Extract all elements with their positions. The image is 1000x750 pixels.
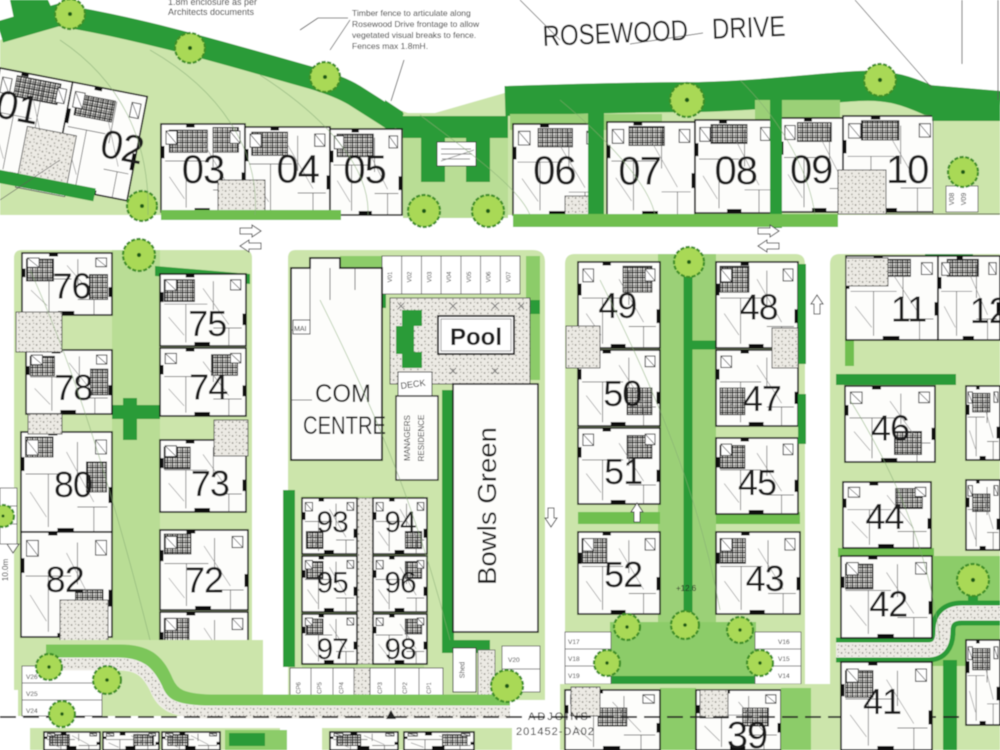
svg-text:02: 02 bbox=[97, 122, 147, 173]
svg-text:V02: V02 bbox=[408, 271, 414, 282]
svg-text:78: 78 bbox=[54, 367, 92, 408]
svg-text:10: 10 bbox=[886, 148, 929, 192]
svg-text:Rosewood Drive frontage to all: Rosewood Drive frontage to allow bbox=[352, 19, 480, 29]
svg-text:12: 12 bbox=[970, 290, 1000, 331]
svg-text:CP1: CP1 bbox=[427, 682, 433, 694]
svg-text:75: 75 bbox=[188, 303, 226, 344]
svg-text:48: 48 bbox=[740, 287, 778, 328]
svg-text:11: 11 bbox=[891, 289, 926, 330]
svg-text:97: 97 bbox=[317, 633, 349, 666]
svg-text:Pool: Pool bbox=[450, 324, 502, 351]
svg-text:44: 44 bbox=[865, 496, 903, 537]
svg-text:76: 76 bbox=[52, 265, 90, 306]
svg-text:MANAGERS: MANAGERS bbox=[403, 415, 412, 461]
svg-text:93: 93 bbox=[317, 506, 349, 539]
svg-text:73: 73 bbox=[191, 463, 229, 504]
svg-text:41: 41 bbox=[863, 681, 901, 722]
svg-text:CP4: CP4 bbox=[340, 682, 346, 694]
svg-text:96: 96 bbox=[384, 566, 416, 599]
svg-text:V07: V07 bbox=[506, 271, 512, 282]
svg-text:V26: V26 bbox=[26, 674, 38, 681]
svg-text:04: 04 bbox=[276, 147, 319, 191]
svg-text:COM: COM bbox=[315, 380, 371, 408]
svg-text:CENTRE: CENTRE bbox=[303, 412, 386, 440]
svg-text:Shed: Shed bbox=[460, 662, 467, 678]
svg-text:52: 52 bbox=[604, 554, 642, 595]
svg-text:51: 51 bbox=[604, 451, 642, 492]
svg-text:V14: V14 bbox=[778, 673, 790, 680]
svg-text:V25: V25 bbox=[26, 691, 38, 698]
svg-text:50: 50 bbox=[603, 373, 641, 414]
svg-text:39: 39 bbox=[727, 715, 767, 750]
svg-text:CP2: CP2 bbox=[403, 682, 409, 694]
svg-text:Timber fence to articulate alo: Timber fence to articulate along bbox=[352, 8, 471, 18]
svg-text:V15: V15 bbox=[778, 656, 790, 663]
svg-text:V08: V08 bbox=[949, 193, 956, 206]
svg-text:95: 95 bbox=[317, 566, 349, 599]
svg-text:V19: V19 bbox=[568, 673, 580, 680]
svg-text:49: 49 bbox=[598, 285, 636, 326]
svg-text:V16: V16 bbox=[778, 639, 790, 646]
svg-text:V09: V09 bbox=[961, 193, 968, 206]
svg-text:V24: V24 bbox=[26, 708, 38, 715]
svg-text:1.8m enclosure as per: 1.8m enclosure as per bbox=[168, 0, 257, 7]
svg-text:CP5: CP5 bbox=[318, 682, 324, 694]
svg-text:V05: V05 bbox=[467, 271, 473, 282]
svg-text:CP6: CP6 bbox=[297, 682, 303, 694]
svg-text:08: 08 bbox=[715, 149, 758, 193]
svg-text:+12.6: +12.6 bbox=[676, 584, 697, 593]
svg-text:74: 74 bbox=[189, 367, 227, 408]
svg-text:V04: V04 bbox=[447, 271, 453, 282]
svg-text:82: 82 bbox=[46, 559, 84, 600]
svg-text:V20: V20 bbox=[508, 657, 520, 664]
svg-text:72: 72 bbox=[185, 559, 223, 600]
svg-text:ADJOINS: ADJOINS bbox=[528, 711, 590, 723]
svg-text:45: 45 bbox=[738, 462, 776, 503]
svg-text:Bowls Green: Bowls Green bbox=[472, 427, 502, 585]
svg-text:MAI: MAI bbox=[294, 326, 307, 333]
svg-text:Architects documents: Architects documents bbox=[168, 7, 255, 17]
svg-text:V06: V06 bbox=[487, 271, 493, 282]
svg-text:80: 80 bbox=[54, 464, 92, 505]
svg-text:47: 47 bbox=[743, 378, 781, 419]
svg-text:V03: V03 bbox=[427, 271, 433, 282]
svg-text:CP3: CP3 bbox=[378, 682, 384, 694]
svg-text:Fences max 1.8mH.: Fences max 1.8mH. bbox=[352, 41, 428, 51]
svg-text:46: 46 bbox=[871, 408, 909, 449]
svg-text:07: 07 bbox=[618, 149, 661, 193]
svg-text:V17: V17 bbox=[568, 639, 580, 646]
svg-text:05: 05 bbox=[343, 148, 386, 192]
svg-text:V01: V01 bbox=[388, 271, 394, 282]
svg-text:201452-DA02: 201452-DA02 bbox=[516, 726, 595, 738]
svg-text:43: 43 bbox=[746, 558, 784, 599]
svg-text:V18: V18 bbox=[568, 656, 580, 663]
svg-text:vegetated visual breaks to fen: vegetated visual breaks to fence. bbox=[352, 30, 476, 40]
svg-text:RESIDENCE: RESIDENCE bbox=[417, 415, 426, 462]
svg-text:42: 42 bbox=[869, 584, 907, 625]
svg-text:09: 09 bbox=[790, 148, 833, 192]
svg-text:06: 06 bbox=[533, 149, 576, 193]
svg-text:10.0m: 10.0m bbox=[1, 559, 10, 582]
svg-text:98: 98 bbox=[384, 633, 416, 666]
